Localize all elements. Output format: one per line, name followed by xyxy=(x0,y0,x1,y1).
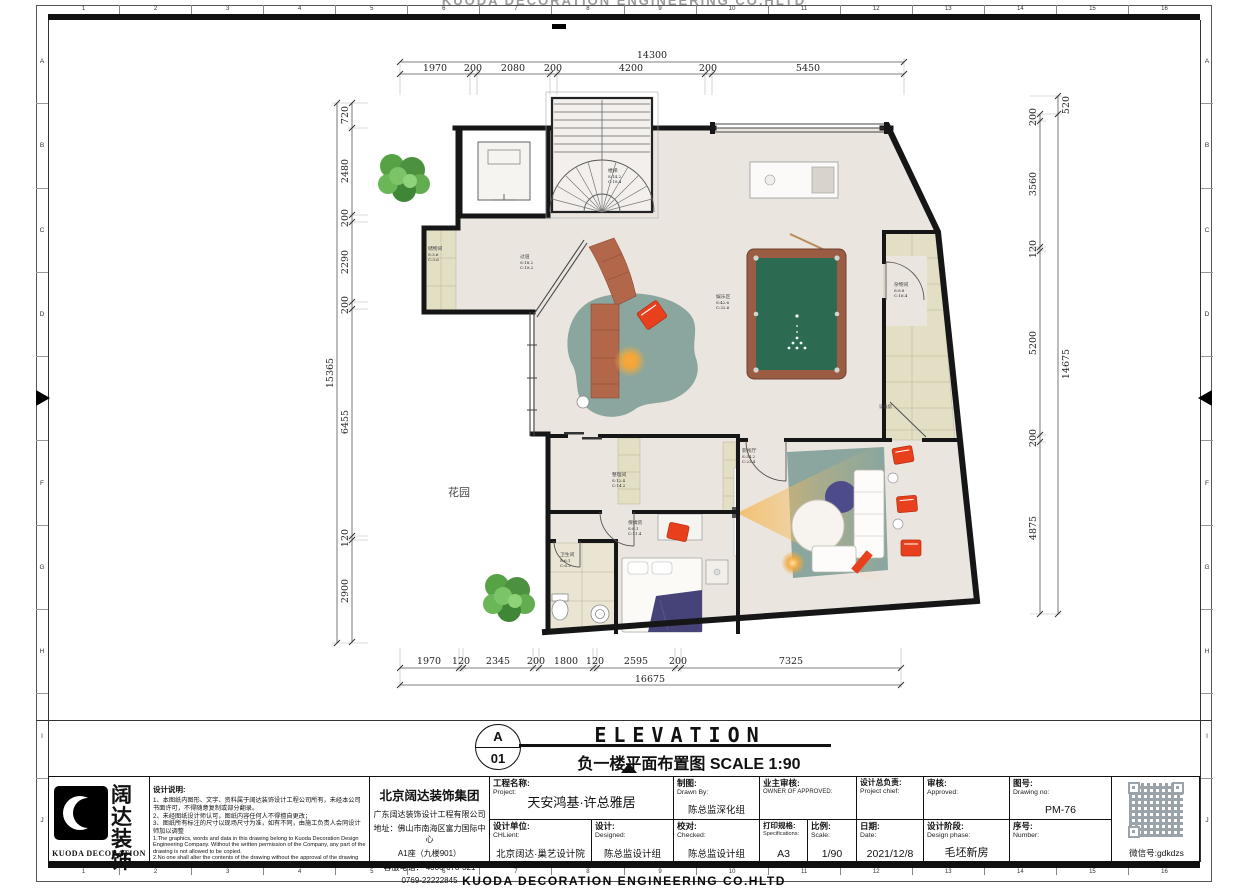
field-drawing-no: 图号:Drawing no: PM-76 xyxy=(1009,777,1111,819)
svg-text:过道: 过道 xyxy=(520,253,530,260)
svg-text:4200: 4200 xyxy=(619,63,643,74)
svg-text:2290: 2290 xyxy=(340,250,351,274)
drawing-sheet: { "page": { "top_watermark": "KUODA DECO… xyxy=(0,0,1248,885)
floor-plan-canvas: 楼梯S:14.2C:18.4 储物间S:3.6C:3.6 过道S:18.2C:1… xyxy=(0,0,1248,720)
company-address-1: 地址：佛山市南海区富力国际中心 xyxy=(373,823,486,845)
svg-text:1970: 1970 xyxy=(423,63,447,74)
svg-text:5200: 5200 xyxy=(1028,331,1039,355)
center-marker-icon xyxy=(621,763,637,773)
field-print-spec: 打印规格:Specifications: A3 xyxy=(759,819,807,863)
company-info-cell: 北京阔达装饰集团 广东阔达装饰设计工程有限公司 地址：佛山市南海区富力国际中心 … xyxy=(369,777,489,861)
room-label-equipment: 设备房 xyxy=(879,403,893,410)
svg-text:520: 520 xyxy=(1061,96,1072,114)
svg-text:200: 200 xyxy=(699,63,717,74)
kuoda-logo-icon xyxy=(53,785,111,843)
svg-text:200: 200 xyxy=(544,63,562,74)
window-jamb-left xyxy=(710,122,715,134)
svg-text:14300: 14300 xyxy=(637,50,667,61)
svg-text:720: 720 xyxy=(340,106,351,124)
svg-text:C:18.2: C:18.2 xyxy=(520,265,534,270)
svg-text:200: 200 xyxy=(527,656,545,667)
drawing-title-cn: 负一楼平面布置图 SCALE 1:90 xyxy=(524,750,854,774)
detail-letter: A xyxy=(476,725,520,748)
design-phase: 毛坯新房 xyxy=(924,844,1009,860)
drawing-number: PM-76 xyxy=(1010,804,1111,816)
svg-text:C:3.6: C:3.6 xyxy=(428,257,439,262)
drawing-scale: SCALE 1:90 xyxy=(710,756,801,773)
company-phone-1: 客服电话： 4006-678-321 xyxy=(373,862,486,873)
title-separator-line xyxy=(36,720,1212,721)
svg-text:120: 120 xyxy=(452,656,470,667)
field-design-unit: 设计单位:CHLient: 北京阔达·巢艺设计院 xyxy=(489,819,591,863)
svg-text:120: 120 xyxy=(586,656,604,667)
svg-text:3560: 3560 xyxy=(1028,172,1039,196)
drawing-title-cn-text: 负一楼平面布置图 xyxy=(577,756,705,773)
svg-text:C:32.6: C:32.6 xyxy=(716,305,730,310)
svg-text:16675: 16675 xyxy=(635,674,665,685)
svg-text:2595: 2595 xyxy=(624,656,648,667)
svg-text:120: 120 xyxy=(340,529,351,547)
svg-text:整理间: 整理间 xyxy=(612,471,627,478)
ruler-letter: J xyxy=(36,779,48,862)
field-number: 序号:Number: xyxy=(1009,819,1111,863)
tree-top-left xyxy=(378,154,430,202)
wechat-id: 微信号:gdkdzs xyxy=(1112,847,1201,859)
qr-code-cell: 微信号:gdkdzs xyxy=(1111,777,1201,861)
design-notes-cell: 设计说明: 1、本图纸内图形、文字、资料属于阔达装饰设计工程公司所有，未经本公司… xyxy=(149,777,369,861)
field-project-chief: 设计总负责:Project chief: xyxy=(856,777,923,819)
svg-text:200: 200 xyxy=(340,209,351,227)
detail-number: 01 xyxy=(476,747,520,769)
field-owner-approved: 业主审核:OWNER OF APPROVED: xyxy=(759,777,856,819)
svg-text:C:11.4: C:11.4 xyxy=(628,531,642,536)
field-project: 工程名称:Project: 天安鸿基·许总雅居 xyxy=(489,777,673,819)
svg-text:储物间: 储物间 xyxy=(428,245,443,252)
svg-text:200: 200 xyxy=(1028,429,1039,447)
company-sub-name: 广东阔达装饰设计工程有限公司 xyxy=(373,809,486,820)
svg-text:杂物间: 杂物间 xyxy=(894,281,909,288)
dimension-text-bottom: 16675 1970 120 2345 200 1800 120 2595 20… xyxy=(417,656,803,685)
svg-text:卫生间: 卫生间 xyxy=(560,551,575,558)
svg-text:C:6.2: C:6.2 xyxy=(560,563,571,568)
svg-text:保姆房: 保姆房 xyxy=(628,519,643,526)
svg-text:4875: 4875 xyxy=(1028,516,1039,540)
window-jamb-right xyxy=(884,122,889,134)
drawing-title-en: ELEVATION xyxy=(540,723,820,747)
garden-label: 花园 xyxy=(448,486,470,499)
svg-text:200: 200 xyxy=(669,656,687,667)
field-approved: 审核:Approved: xyxy=(923,777,1009,819)
svg-text:C:23.4: C:23.4 xyxy=(742,459,756,464)
staircase xyxy=(546,92,658,218)
field-scale: 比例:Scale: 1/90 xyxy=(807,819,856,863)
console-table xyxy=(750,162,838,198)
detail-reference-bubble: A 01 xyxy=(475,724,521,770)
company-address-2: A1座（九楼901） xyxy=(373,848,486,859)
wechat-qr-icon xyxy=(1129,783,1183,837)
bottom-company-name: KUODA DECORATION ENGINEERING CO.HLTD xyxy=(48,874,1200,888)
dimension-text-right: 520 14675 200 3560 120 5200 200 4875 xyxy=(1028,96,1072,540)
room-label-theater: 影视厅S:34.2C:23.4 xyxy=(742,447,757,464)
logo-cn-text: 阔达 装饰 xyxy=(111,785,149,873)
svg-text:14675: 14675 xyxy=(1061,349,1072,379)
svg-text:1970: 1970 xyxy=(417,656,441,667)
field-drawn: 制图:Drawn By: 陈总监深化组 xyxy=(673,777,759,819)
room-label-utility: 整理间S:12.4C:14.2 xyxy=(612,471,627,488)
svg-text:C:16.4: C:16.4 xyxy=(894,293,908,298)
svg-text:1800: 1800 xyxy=(554,656,578,667)
svg-text:200: 200 xyxy=(464,63,482,74)
svg-text:200: 200 xyxy=(340,296,351,314)
svg-text:6455: 6455 xyxy=(340,410,351,434)
svg-text:120: 120 xyxy=(1028,240,1039,258)
svg-text:影视厅: 影视厅 xyxy=(742,447,757,454)
svg-text:2080: 2080 xyxy=(501,63,525,74)
svg-text:5450: 5450 xyxy=(796,63,820,74)
room-label-game-area: 娱乐区S:42.6C:32.6 xyxy=(716,293,731,310)
billiard-table xyxy=(747,234,846,379)
tree-bottom-left xyxy=(483,574,535,622)
svg-text:2480: 2480 xyxy=(340,159,351,183)
svg-text:2900: 2900 xyxy=(340,579,351,603)
field-checked: 校对:Checked: 陈总监设计组 xyxy=(673,819,759,863)
company-logo-cell: 阔达 装饰 KUODA DECORATION xyxy=(49,777,149,861)
elevator xyxy=(460,128,548,216)
logo-en-text: KUODA DECORATION xyxy=(49,849,149,858)
ruler-letter: J xyxy=(1201,779,1213,862)
drawing-date: 2021/12/8 xyxy=(857,848,923,860)
field-designed: 设计:Designed: 陈总监设计组 xyxy=(591,819,673,863)
svg-text:设备房: 设备房 xyxy=(879,403,893,410)
field-design-phase: 设计阶段:Design phase: 毛坯新房 xyxy=(923,819,1009,863)
svg-text:7325: 7325 xyxy=(779,656,803,667)
svg-text:C:14.2: C:14.2 xyxy=(612,483,626,488)
svg-text:15365: 15365 xyxy=(325,358,336,388)
company-group-name: 北京阔达装饰集团 xyxy=(373,785,486,804)
storage-door-clearing xyxy=(885,256,927,326)
svg-text:2345: 2345 xyxy=(486,656,510,667)
svg-text:C:18.4: C:18.4 xyxy=(608,179,622,184)
svg-text:楼梯: 楼梯 xyxy=(608,167,618,174)
svg-text:娱乐区: 娱乐区 xyxy=(716,293,731,300)
field-date: 日期:Date: 2021/12/8 xyxy=(856,819,923,863)
dimension-text-left: 15365 720 2480 200 2290 200 6455 120 290… xyxy=(325,106,351,603)
project-name: 天安鸿基·许总雅居 xyxy=(490,792,673,811)
svg-text:200: 200 xyxy=(1028,108,1039,126)
title-block: 阔达 装饰 KUODA DECORATION 设计说明: 1、本图纸内图形、文字… xyxy=(48,776,1200,862)
